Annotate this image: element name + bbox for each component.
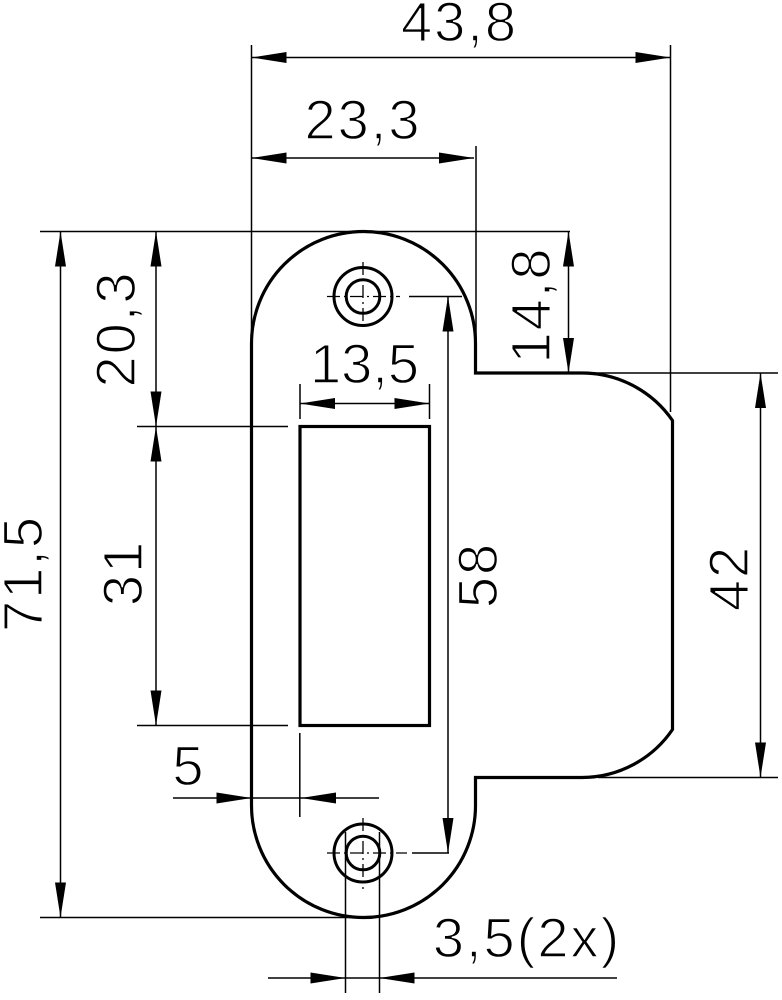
svg-text:14,8: 14,8 xyxy=(499,247,562,364)
svg-text:20,3: 20,3 xyxy=(84,271,147,388)
svg-text:23,3: 23,3 xyxy=(305,88,422,151)
svg-text:43,8: 43,8 xyxy=(401,0,518,53)
svg-text:71,5: 71,5 xyxy=(0,515,54,632)
svg-text:31: 31 xyxy=(91,540,154,606)
svg-text:58: 58 xyxy=(446,542,509,608)
svg-text:5: 5 xyxy=(172,734,205,797)
svg-text:3,5(2x): 3,5(2x) xyxy=(433,906,621,969)
svg-text:13,5: 13,5 xyxy=(310,332,419,395)
svg-text:42: 42 xyxy=(697,545,760,611)
